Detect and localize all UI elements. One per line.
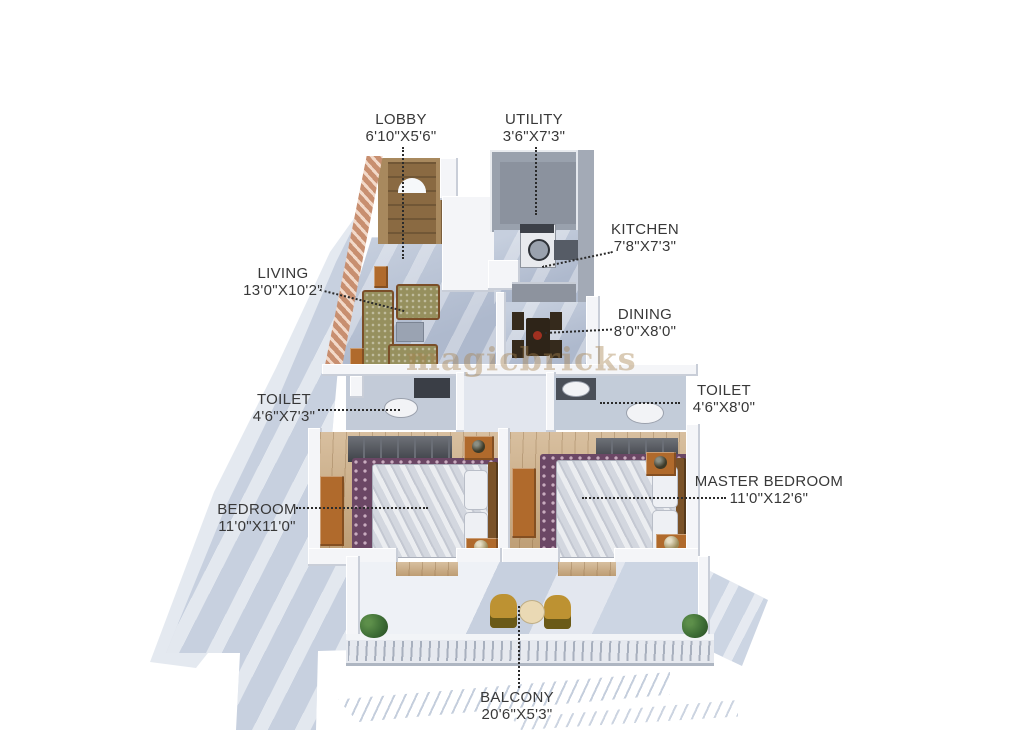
room-label-balcony: BALCONY 20'6"X5'3" <box>480 689 554 724</box>
room-dims: 6'10"X5'6" <box>365 128 436 145</box>
toilet-right-basin <box>562 381 590 397</box>
master-dresser <box>512 468 536 538</box>
room-label-dining: DINING 8'0"X8'0" <box>614 306 676 341</box>
entrance-door <box>388 162 436 244</box>
room-label-utility: UTILITY 3'6"X7'3" <box>503 111 565 146</box>
utility-floor <box>500 162 580 224</box>
room-label-living: LIVING 13'0"X10'2" <box>243 265 323 300</box>
washing-machine-top <box>520 224 554 233</box>
room-label-lobby: LOBBY 6'10"X5'6" <box>365 111 436 146</box>
toilet-left-wc <box>384 398 418 418</box>
room-dims: 4'6"X8'0" <box>693 399 755 416</box>
wall-right-of-door <box>440 158 458 200</box>
balcony-chair-right <box>544 595 571 629</box>
kitchen-counter-dark <box>554 240 578 260</box>
leader-utility <box>535 147 537 215</box>
bedroom-dresser <box>320 476 344 546</box>
balcony-threshold-right <box>558 562 616 576</box>
room-name: BALCONY <box>480 689 554 706</box>
bedrooms-divider-wall <box>498 428 510 568</box>
balcony-plant-left <box>360 614 388 638</box>
balcony-chair-left <box>490 594 517 628</box>
toilet-left-cistern <box>414 378 450 398</box>
room-dims: 11'0"X11'0" <box>217 518 297 535</box>
balcony-railing-slats <box>348 641 712 661</box>
room-dims: 13'0"X10'2" <box>243 282 323 299</box>
balcony-table <box>519 600 545 624</box>
floorplan-canvas: magicbricks LOBBY 6'10"X5'6" UTILITY 3'6… <box>0 0 1024 730</box>
leader-master-bedroom <box>582 497 726 499</box>
room-name: DINING <box>614 306 676 323</box>
kitchen-counter-lower <box>512 282 576 302</box>
leader-lobby <box>402 147 404 259</box>
leader-bedroom <box>296 507 428 509</box>
watermark: magicbricks <box>406 340 626 378</box>
kitchen-right-wall <box>576 150 594 306</box>
coffee-table <box>396 322 424 342</box>
room-name: UTILITY <box>503 111 565 128</box>
sofa-single <box>396 284 440 320</box>
room-dims: 4'6"X7'3" <box>253 408 315 425</box>
room-dims: 20'6"X5'3" <box>480 706 554 723</box>
room-name: LIVING <box>243 265 323 282</box>
leader-balcony <box>518 606 520 688</box>
balcony-left-wall <box>346 556 360 644</box>
room-name: KITCHEN <box>611 221 679 238</box>
leader-toilet-left <box>318 409 400 411</box>
room-label-master-bedroom: MASTER BEDROOM 11'0"X12'6" <box>695 473 843 508</box>
room-name: TOILET <box>253 391 315 408</box>
room-dims: 3'6"X7'3" <box>503 128 565 145</box>
room-label-toilet-right: TOILET 4'6"X8'0" <box>693 382 755 417</box>
room-label-kitchen: KITCHEN 7'8"X7'3" <box>611 221 679 256</box>
balcony-plant-right <box>682 614 708 638</box>
leader-toilet-right <box>600 402 680 404</box>
dining-table-vase <box>533 331 542 340</box>
room-label-bedroom: BEDROOM 11'0"X11'0" <box>217 501 297 536</box>
dining-chair <box>512 312 524 330</box>
toilet-left-corner <box>350 376 364 398</box>
balcony-threshold-left <box>396 562 458 576</box>
room-name: MASTER BEDROOM <box>695 473 843 490</box>
washing-machine-door <box>528 239 550 261</box>
dining-chair <box>550 312 562 330</box>
room-dims: 8'0"X8'0" <box>614 323 676 340</box>
room-name: BEDROOM <box>217 501 297 518</box>
bedroom-vase-top <box>472 440 485 453</box>
room-dims: 7'8"X7'3" <box>611 238 679 255</box>
sofa-side-table <box>374 266 388 288</box>
master-vase-top <box>654 456 667 469</box>
hall-floor <box>464 376 548 432</box>
room-label-toilet-left: TOILET 4'6"X7'3" <box>253 391 315 426</box>
room-name: LOBBY <box>365 111 436 128</box>
bedroom-pillow <box>464 470 488 510</box>
toilet-right-wc <box>626 402 664 424</box>
room-name: TOILET <box>693 382 755 399</box>
